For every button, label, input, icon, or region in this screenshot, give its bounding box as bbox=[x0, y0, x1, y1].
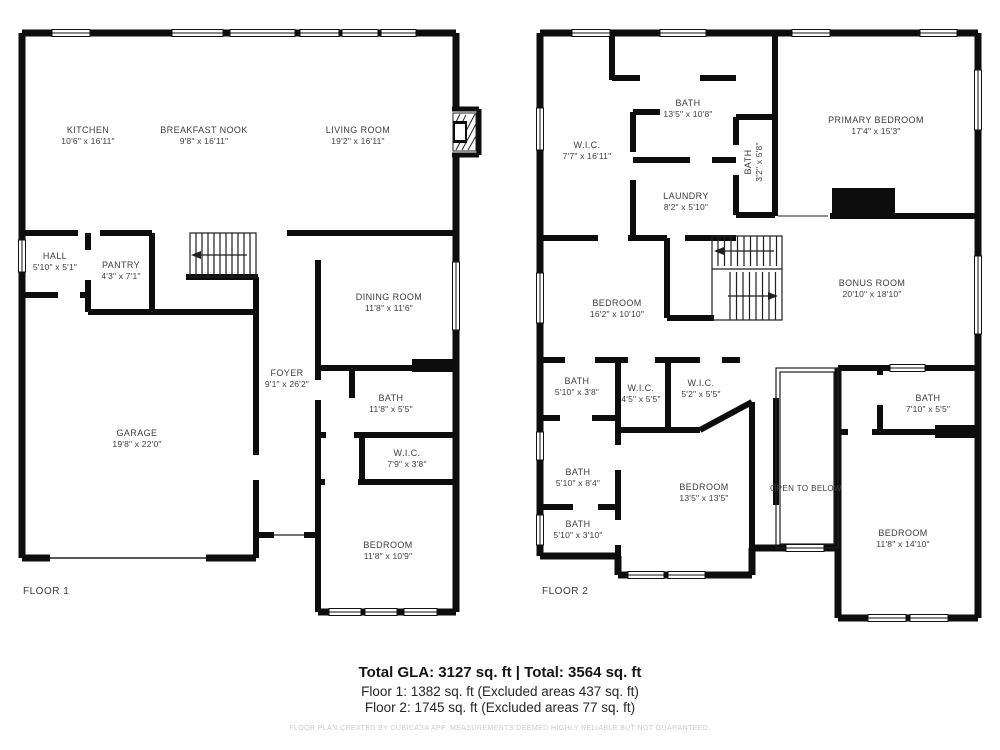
room-label-bath-38-f2: BATH5'10" x 3'8" bbox=[555, 376, 599, 398]
floor1-walls bbox=[22, 33, 456, 612]
total-gla-line: Total GLA: 3127 sq. ft | Total: 3564 sq.… bbox=[0, 664, 1000, 681]
room-label-wic-f1: W.I.C.7'9" x 3'8" bbox=[387, 448, 426, 470]
room-label-bonus-room: BONUS ROOM20'10" x 18'10" bbox=[839, 278, 906, 300]
room-label-bath-84-f2: BATH5'10" x 8'4" bbox=[556, 467, 600, 489]
floor1-stairs bbox=[190, 233, 256, 277]
room-label-primary-bedroom: PRIMARY BEDROOM17'4" x 15'3" bbox=[828, 115, 924, 137]
floor1-front-door bbox=[274, 531, 304, 539]
room-label-breakfast-nook: BREAKFAST NOOK9'8" x 16'11" bbox=[160, 125, 247, 147]
fireplace-icon bbox=[452, 107, 481, 157]
room-label-wic-45-f2: W.I.C.4'5" x 5'5" bbox=[621, 383, 660, 405]
room-label-bath-135-f2: BATH13'5" x 10'8" bbox=[663, 98, 712, 120]
room-label-bath-710-f2: BATH7'10" x 5'5" bbox=[906, 393, 950, 415]
floor1-garage-door bbox=[50, 554, 206, 562]
floor1-label: FLOOR 1 bbox=[23, 586, 69, 597]
room-label-bedroom-135: BEDROOM13'5" x 13'5" bbox=[679, 482, 728, 504]
room-label-dining-room: DINING ROOM11'8" x 11'6" bbox=[356, 292, 422, 314]
room-label-pantry: PANTRY4'3" x 7'1" bbox=[101, 260, 140, 282]
room-label-bath-small-f2: BATH3'2" x 5'8" bbox=[743, 142, 765, 181]
room-label-bath-f1: BATH11'8" x 5'5" bbox=[369, 393, 413, 415]
floor2-area-line: Floor 2: 1745 sq. ft (Excluded areas 77 … bbox=[0, 700, 1000, 715]
room-label-foyer: FOYER9'1" x 26'2" bbox=[265, 368, 309, 390]
room-label-garage: GARAGE19'8" x 22'0" bbox=[112, 428, 161, 450]
floor2-label: FLOOR 2 bbox=[542, 586, 588, 597]
floor2-stairs bbox=[712, 236, 782, 320]
room-label-bedroom-162: BEDROOM16'2" x 10'10" bbox=[590, 298, 644, 320]
room-label-bath-310-f2: BATH5'10" x 3'10" bbox=[553, 519, 602, 541]
room-label-living-room: LIVING ROOM19'2" x 16'11" bbox=[326, 125, 390, 147]
floor1-windows bbox=[19, 30, 460, 616]
room-label-kitchen: KITCHEN10'6" x 16'11" bbox=[61, 125, 115, 147]
disclaimer-text: FLOOR PLAN CREATED BY CUBICASA APP. MEAS… bbox=[0, 725, 1000, 732]
room-label-wic-52-f2: W.I.C.5'2" x 5'5" bbox=[681, 378, 720, 400]
floor1-area-line: Floor 1: 1382 sq. ft (Excluded areas 437… bbox=[0, 684, 1000, 699]
room-label-hall: HALL5'10" x 5'1" bbox=[33, 251, 77, 273]
open-to-below-label: OPEN TO BELOW bbox=[770, 484, 842, 494]
floor2-open-shaft bbox=[776, 368, 838, 548]
floorplan-page: KITCHEN10'6" x 16'11" BREAKFAST NOOK9'8"… bbox=[0, 0, 1000, 750]
room-label-bedroom-118: BEDROOM11'8" x 14'10" bbox=[876, 528, 930, 550]
room-label-bedroom-f1: BEDROOM11'8" x 10'9" bbox=[363, 540, 412, 562]
room-label-laundry: LAUNDRY8'2" x 5'10" bbox=[663, 191, 709, 213]
floorplan-drawing bbox=[0, 0, 1000, 750]
room-label-wic-big-f2: W.I.C.7'7" x 16'11" bbox=[563, 140, 612, 162]
